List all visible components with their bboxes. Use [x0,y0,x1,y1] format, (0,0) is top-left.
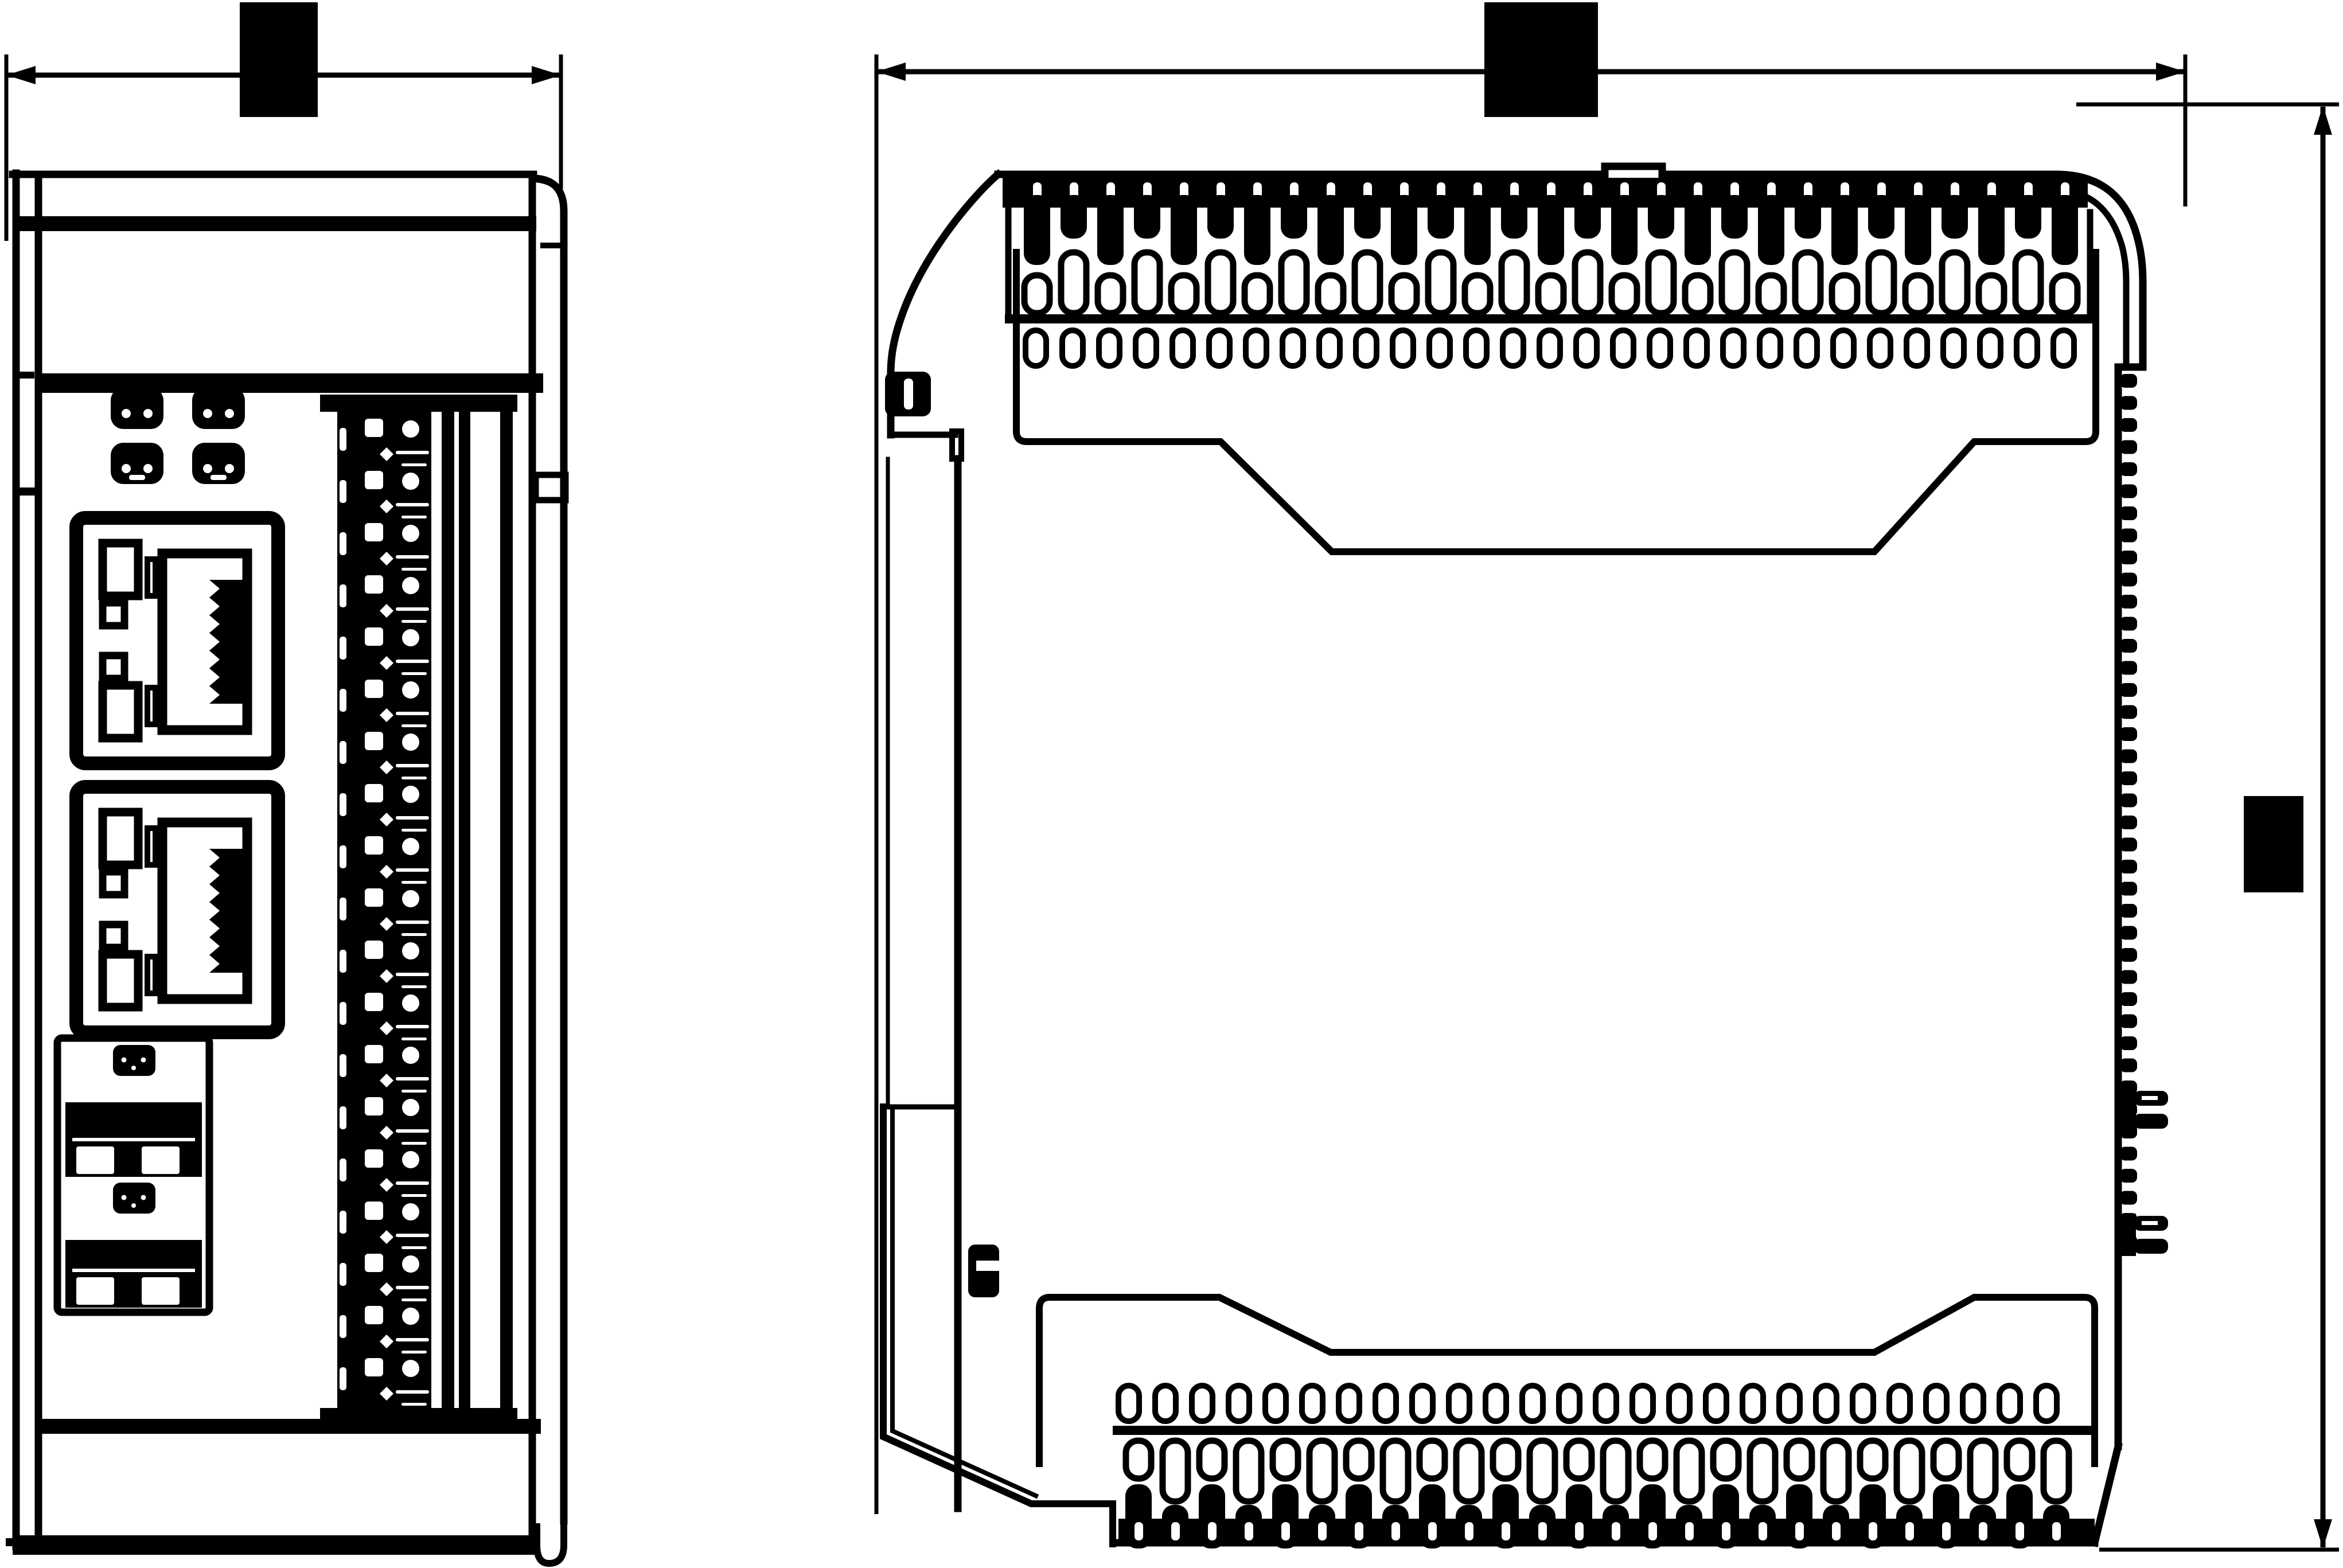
power-slot-1a [76,1146,114,1174]
front-bottom-band [13,1535,536,1555]
vent-hanging-tab [1464,195,1491,265]
terminal-dash [401,1194,427,1197]
vent-small-slot [1999,1386,2020,1421]
terminal-dash [401,516,427,518]
vent-small-slot [1889,1386,1910,1421]
side-bottom-vent-small-slots [1118,1386,2057,1421]
arrowhead-up [2314,106,2332,135]
terminal-dash [396,868,429,872]
serration-tooth [2120,860,2137,873]
vent-small-slot [1486,1386,1506,1421]
vent-small-slot [1412,1386,1433,1421]
vent-narrow-slot [1869,1522,1877,1540]
vent-small-slot [1870,330,1890,366]
vent-small-slot [2017,330,2037,366]
side-bottom-right-chamfer [2095,1446,2118,1543]
vent-hanging-tab [1538,195,1564,265]
vent-slot [1428,252,1453,313]
vent-small-slot [1466,330,1487,366]
led-pin-slot [129,475,145,480]
vent-hanging-tab [1244,195,1270,265]
rj45-side-bar-bottom [147,957,155,993]
terminal-rail-slit [340,637,346,660]
vent-slot [1199,1441,1225,1479]
serration-tooth [2120,882,2137,896]
connector-tab-prong-slit [2142,1096,2158,1100]
terminal-test-point [402,1360,419,1377]
terminal-dash [401,568,427,571]
vent-slot [1420,1441,1445,1479]
terminal-test-point [402,577,419,594]
terminal-dash [396,712,429,715]
vent-slot [1869,252,1894,313]
vent-small-slot [1686,330,1707,366]
vent-hanging-tab [1354,195,1381,239]
serration-tooth [2120,838,2137,852]
vent-slot [1897,1441,1922,1501]
arrowhead-left [6,66,36,84]
power-plug-1-pin [141,1058,146,1063]
terminal-dash [396,555,429,559]
vent-slot [1309,1441,1335,1501]
terminal-rail-slit [340,480,346,503]
vent-narrow-slot [1722,1522,1730,1540]
connector-tab-prong [2134,1114,2168,1129]
vent-slot [1750,1441,1775,1501]
ethernet-port-2 [76,787,278,1032]
terminal-dash [401,1037,427,1040]
serration-tooth [2120,904,2137,918]
vent-small-slot [1429,330,1450,366]
vent-narrow-slot [1648,1522,1657,1540]
side-top-vent-band [1003,178,2096,552]
terminal-test-point [402,473,419,490]
vent-slot [1391,275,1417,313]
vent-small-slot [1613,330,1634,366]
io-strip-top-cap [320,395,517,412]
terminal-test-point [402,734,419,751]
vent-narrow-slot [1612,1522,1620,1540]
vent-narrow-slot [2015,1522,2024,1540]
terminal-test-point [402,525,419,542]
vent-narrow-slot [1428,1522,1437,1540]
terminal-test-point [402,994,419,1012]
terminal-dash [396,816,429,820]
serration-tooth [2120,1036,2137,1050]
rj45-side-bar-top [147,828,155,865]
vent-slot [1566,1441,1592,1479]
terminal-dash [396,1181,429,1185]
power-slot-2a [76,1277,114,1305]
ethernet-ports [76,518,278,1032]
vent-narrow-slot [1795,1522,1804,1540]
terminal-dash [396,1129,429,1133]
terminal-test-point [402,1255,419,1273]
terminal-clamp-square [365,419,383,437]
rj45-latch-rect-bottom [103,685,138,738]
rj45-side-bar-top [147,559,155,596]
terminal-clamp-square [365,1254,383,1272]
vent-small-slot [1246,330,1266,366]
vent-narrow-slot [1538,1522,1547,1540]
terminal-clamp-square [365,627,383,646]
connector-tab-prong [2134,1239,2168,1254]
vent-narrow-slot [1208,1522,1217,1540]
vent-hanging-tab [1097,195,1124,265]
vent-slot [1612,275,1637,313]
terminal-test-point [402,838,419,855]
terminal-dash [401,1403,427,1406]
power-slot-1b [142,1146,180,1174]
terminal-test-point [402,629,419,646]
terminal-rail-slit [340,1211,346,1234]
vent-slot [1575,252,1600,313]
power-plug-2-pin [141,1195,146,1200]
vent-slot [1126,1441,1151,1479]
power-band-1-slit [72,1138,195,1141]
rj45-latch-rect-bottom [103,954,138,1007]
serration-tooth [2120,396,2137,410]
vent-hanging-tab [1868,195,1894,239]
rj45-latch-rect-top [103,812,138,865]
front-view [6,173,566,1563]
terminal-dash [401,1351,427,1354]
bottom-vent-divider-line [1113,1426,2095,1435]
terminal-clamp-square [365,523,383,541]
terminal-test-point [402,681,419,699]
terminal-clamp-square [365,888,383,907]
connector-tab-base [2121,1214,2136,1256]
vent-slot [1538,275,1564,313]
terminal-clamp-square [365,836,383,855]
terminal-dash [396,973,429,976]
terminal-rail-slit [340,1367,346,1390]
io-strip-bar-1 [442,412,454,1408]
vent-narrow-slot [1135,1522,1143,1540]
terminal-dash [401,724,427,727]
vent-slot [2007,1441,2032,1479]
terminal-clamp-square [365,1202,383,1220]
vent-small-slot [1650,330,1670,366]
terminal-dash [396,1077,429,1081]
vent-small-slot [1118,1386,1139,1421]
serration-tooth [2120,992,2137,1006]
front-right-latch-foot [537,1521,564,1563]
vent-slot [1383,1441,1408,1501]
terminal-test-point [402,786,419,803]
power-plug-2 [113,1183,155,1214]
vent-small-slot [1833,330,1854,366]
terminal-dash [396,503,429,506]
vent-slot [1061,252,1086,313]
led-pin [203,409,212,418]
serration-tooth [2120,529,2137,543]
terminal-dash [401,881,427,884]
terminal-test-point [402,1203,419,1220]
serration-tooth [2120,485,2137,498]
terminal-clamp-square [365,784,383,802]
serration-tooth [2120,926,2137,940]
vent-narrow-slot [1355,1522,1363,1540]
vent-slot [1685,275,1710,313]
vent-slot [1493,1441,1518,1479]
vent-small-slot [1539,330,1560,366]
rj45-notch-bottom [103,656,124,678]
led-pin [225,464,234,473]
vent-small-slot [1375,1386,1396,1421]
terminal-rail-slit [340,532,346,555]
vent-small-slot [2036,1386,2057,1421]
vent-small-slot [1393,330,1413,366]
vent-small-slot [1816,1386,1837,1421]
serration-tooth [2120,418,2137,432]
vent-slot [1795,252,1820,313]
serration-tooth [2120,750,2137,763]
vent-narrow-slot [1318,1522,1327,1540]
led-indicator [192,388,245,429]
side-bottom-vent-band [1039,1297,2095,1549]
vent-small-slot [1062,330,1083,366]
front-left-rail-tick-mid [13,487,38,496]
rj45-side-bar-bottom [147,688,155,724]
arrowhead-right [2156,63,2185,81]
vent-hanging-tab [1134,195,1160,239]
vent-small-slot [1172,330,1193,366]
vent-narrow-slot [1502,1522,1510,1540]
terminal-dash [396,607,429,611]
vent-hanging-tab [1391,195,1417,265]
vent-small-slot [1796,330,1817,366]
serration-tooth [2120,1191,2137,1205]
vent-slot [1860,1441,1885,1479]
serration-tooth [2120,816,2137,829]
side-left-slant-edge [891,174,998,373]
vent-slot [1933,1441,1959,1479]
io-strip-bottom-cap [320,1408,517,1424]
rj45-notch-bottom [103,925,124,947]
vent-small-slot [1356,330,1377,366]
dimension-value-redacted [240,2,318,117]
vent-hanging-tab [1574,195,1601,239]
terminal-dash [401,1142,427,1145]
side-top-vent-small-slots [1026,330,2074,366]
terminal-dash [401,829,427,832]
side-bottom-shell-contour [1039,1297,2095,1464]
io-terminal-strip [320,395,517,1424]
vent-small-slot [1760,330,1780,366]
din-rail-foot-inner-line [892,1110,1036,1496]
terminal-rail-slit [340,584,346,607]
vent-slot [1245,275,1270,313]
vent-small-slot [1522,1386,1543,1421]
vent-small-slot [1136,330,1156,366]
vent-small-slot [1099,330,1120,366]
vent-slot [1135,252,1160,313]
vent-slot [1530,1441,1555,1501]
vent-hanging-tab [2052,195,2078,265]
terminal-dash [396,660,429,663]
terminal-dash [396,1025,429,1028]
terminal-rail-slit [340,1159,346,1181]
vent-hanging-tab [1942,195,1968,239]
power-plug-1 [113,1045,155,1076]
vent-slot [1273,1441,1298,1479]
vent-hanging-tab [1501,195,1527,239]
vent-slot [1456,1441,1482,1501]
led-pin [225,409,234,418]
vent-hanging-tab [1795,195,1821,239]
vent-slot [1355,252,1380,313]
vent-narrow-slot [2052,1522,2061,1540]
vent-slot [2015,252,2041,313]
power-terminal-block [57,1038,209,1312]
serration-tooth [2120,639,2137,653]
vent-slot [1942,252,1967,313]
power-band-2-slit [72,1269,195,1272]
serration-tooth [2120,970,2137,984]
arrowhead-right [532,66,561,84]
vent-narrow-slot [1171,1522,1180,1540]
power-plug-1-pin [131,1066,136,1070]
terminal-clamp-square [365,1097,383,1115]
serration-tooth [2120,771,2137,785]
vent-hanging-tab [1281,195,1307,239]
vent-slot [1832,275,1857,313]
terminal-rail-slit [340,950,346,973]
vent-hanging-tab [1758,195,1784,265]
vent-narrow-slot [1465,1522,1473,1540]
vent-small-slot [1943,330,1964,366]
vent-hanging-tab [1905,195,1931,265]
vent-slot [1648,252,1674,313]
side-left-latch-slot [904,379,913,409]
vent-hanging-tab [1024,195,1050,265]
terminal-test-point [402,1308,419,1325]
vent-small-slot [1559,1386,1580,1421]
terminal-clamp-square [365,993,383,1011]
top-vent-divider-line [1005,314,2092,323]
vent-small-slot [1632,1386,1653,1421]
vent-small-slot [1576,330,1597,366]
vent-small-slot [1503,330,1523,366]
vent-small-slot [1907,330,1927,366]
terminal-dash [401,985,427,988]
terminal-dash [396,920,429,924]
vent-hanging-tab [1317,195,1344,265]
terminal-test-point [402,1047,419,1064]
side-connector-tab-1 [2121,1089,2168,1131]
vent-hanging-tab [1207,195,1234,239]
rj45-latch-rect-top [103,543,138,596]
vent-slot [1208,252,1233,313]
drawing-canvas [0,0,2343,1568]
side-top-vent-columns [1024,195,2078,313]
terminal-rail-slit [340,845,346,868]
serration-tooth [2120,727,2137,741]
terminal-dash [396,764,429,767]
serration-tooth [2120,506,2137,520]
terminal-test-point [402,1099,419,1116]
led-pin [143,464,153,473]
terminal-clamp-square [365,941,383,959]
terminal-rail-slit [340,793,346,816]
vent-slot [1502,252,1527,313]
vent-narrow-slot [1245,1522,1253,1540]
terminal-clamp-square [365,1358,383,1376]
serration-tooth [2120,683,2137,697]
vent-hanging-tab [1685,195,1711,265]
serration-tooth [2120,551,2137,564]
ethernet-port-1 [76,518,278,763]
terminal-dash [401,1246,427,1249]
serration-tooth [2120,705,2137,719]
terminal-rail-slit [340,1315,346,1338]
rj45-contact-block [209,580,246,704]
vent-hanging-tab [2015,195,2041,239]
vent-hanging-tab [1428,195,1454,239]
vent-small-slot [1449,1386,1469,1421]
arrowhead-left [876,63,906,81]
vent-small-slot [1596,1386,1616,1421]
terminal-clamp-square [365,471,383,489]
vent-small-slot [1742,1386,1763,1421]
vent-slot [1465,275,1490,313]
rj45-contact-block [209,849,246,973]
vent-slot [2052,275,2077,313]
terminal-rail-slit [340,1106,346,1129]
terminal-rail-slit [340,689,346,712]
vent-slot [1346,1441,1371,1479]
vent-slot [1787,1441,1812,1479]
vent-small-slot [1963,1386,1983,1421]
dimension-front-width [6,2,561,241]
serration-tooth [2120,1015,2137,1028]
serration-tooth [2120,1169,2137,1183]
terminal-dash [401,1298,427,1301]
vent-slot [1024,275,1050,313]
vent-small-slot [1319,330,1340,366]
vent-hanging-tab [1061,195,1087,239]
vent-slot [1603,1441,1628,1501]
vent-small-slot [1926,1386,1947,1421]
vent-hanging-tab [1721,195,1748,239]
serration-tooth [2120,374,2137,388]
terminal-clamp-square [365,1149,383,1168]
front-led-array [111,388,245,484]
vent-slot [1970,1441,1995,1501]
power-slot-2b [142,1277,180,1305]
terminal-dash [401,463,427,466]
vent-small-slot [1706,1386,1726,1421]
vent-small-slot [1980,330,2001,366]
serration-tooth [2120,948,2137,962]
serration-tooth [2120,617,2137,631]
terminal-dash [396,1338,429,1341]
vent-slot [1979,275,2004,313]
vent-small-slot [1723,330,1744,366]
vent-small-slot [1302,1386,1323,1421]
arrowhead-down [2314,1519,2332,1549]
terminal-rail-slit [340,1002,346,1025]
vent-small-slot [1229,1386,1249,1421]
terminal-test-point [402,1151,419,1168]
connector-tab-base [2121,1089,2136,1131]
vent-small-slot [1853,1386,1873,1421]
vent-narrow-slot [1905,1522,1914,1540]
vent-small-slot [1209,330,1230,366]
vent-slot [1905,275,1931,313]
vent-small-slot [1026,330,1046,366]
